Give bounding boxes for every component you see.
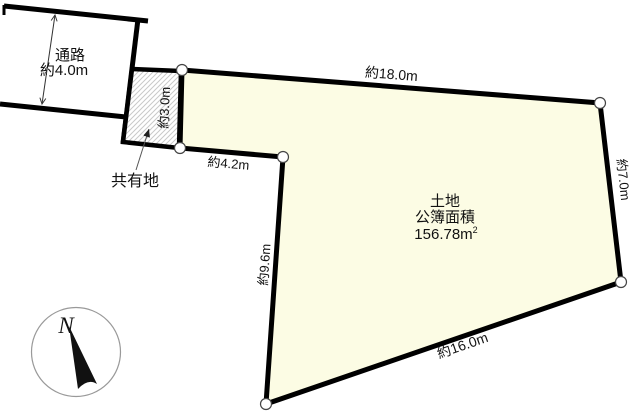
diagram-svg: 通路 約4.0m 約3.0m 共有地 約18.0m 約7.0m 約16.0m 約… xyxy=(0,0,637,419)
land-plot-diagram: 通路 約4.0m 約3.0m 共有地 約18.0m 約7.0m 約16.0m 約… xyxy=(0,0,637,419)
shared-area-shape xyxy=(123,69,181,148)
vertex-marker xyxy=(261,399,272,410)
vertex-marker xyxy=(595,98,606,109)
passage-width-dimension-arrow xyxy=(42,15,55,104)
plot-area-value: 156.78m2 xyxy=(414,225,477,243)
shared-area-name-label: 共有地 xyxy=(111,172,159,190)
plot-area-superscript: 2 xyxy=(473,225,478,235)
road-top-edge-line xyxy=(4,6,148,21)
dim-right-edge-label: 約7.0m xyxy=(614,158,633,201)
compass-north-label: N xyxy=(57,313,75,338)
passage-width-label: 約4.0m xyxy=(40,62,88,79)
main-plot: 約18.0m 約7.0m 約16.0m 約9.6m 約4.2m 土地 公簿面積 … xyxy=(175,64,634,410)
vertex-marker xyxy=(278,152,289,163)
dim-top-edge-label: 約18.0m xyxy=(364,64,418,84)
plot-area-number: 156.78m xyxy=(414,226,472,243)
vertex-marker xyxy=(177,65,188,76)
vertex-marker xyxy=(616,277,627,288)
dim-left-edge-label: 約9.6m xyxy=(256,243,274,286)
shared-area-width-label: 約3.0m xyxy=(156,86,173,129)
plot-title: 土地 xyxy=(430,193,460,210)
compass: N xyxy=(32,308,121,397)
shared-area: 約3.0m 共有地 xyxy=(111,69,181,190)
plot-outline-shape xyxy=(180,70,621,404)
vertex-marker xyxy=(175,143,186,154)
road-bottom-edge-line xyxy=(0,104,126,117)
dim-notch-edge-label: 約4.2m xyxy=(207,154,250,173)
plot-subtitle: 公簿面積 xyxy=(415,209,475,226)
